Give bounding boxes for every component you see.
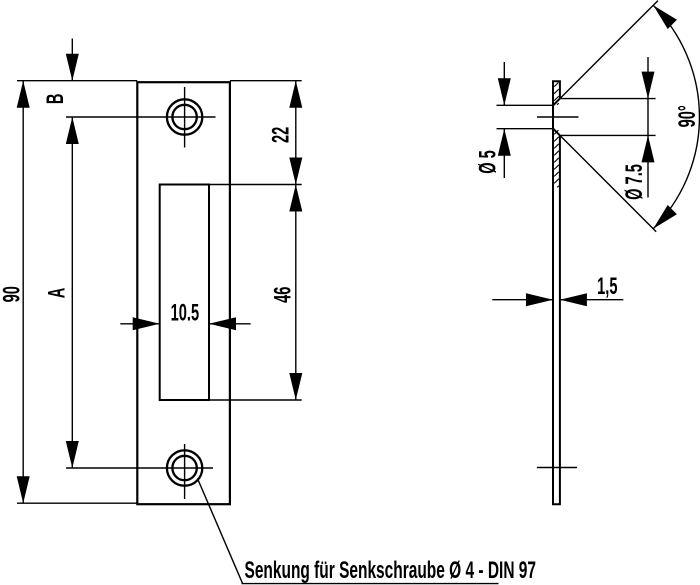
svg-text:90: 90 — [0, 286, 26, 302]
svg-text:46: 46 — [270, 287, 297, 303]
svg-text:1,5: 1,5 — [597, 273, 617, 300]
svg-text:10.5: 10.5 — [171, 300, 199, 327]
svg-text:Ø 7.5: Ø 7.5 — [621, 164, 648, 200]
svg-text:22: 22 — [268, 127, 295, 143]
svg-text:Senkung für Senkschraube Ø 4 -: Senkung für Senkschraube Ø 4 - DIN 97 — [245, 558, 537, 584]
svg-text:B: B — [43, 94, 70, 105]
svg-text:90°: 90° — [674, 105, 700, 127]
svg-text:Ø 5: Ø 5 — [475, 150, 502, 174]
svg-text:A: A — [44, 288, 71, 299]
